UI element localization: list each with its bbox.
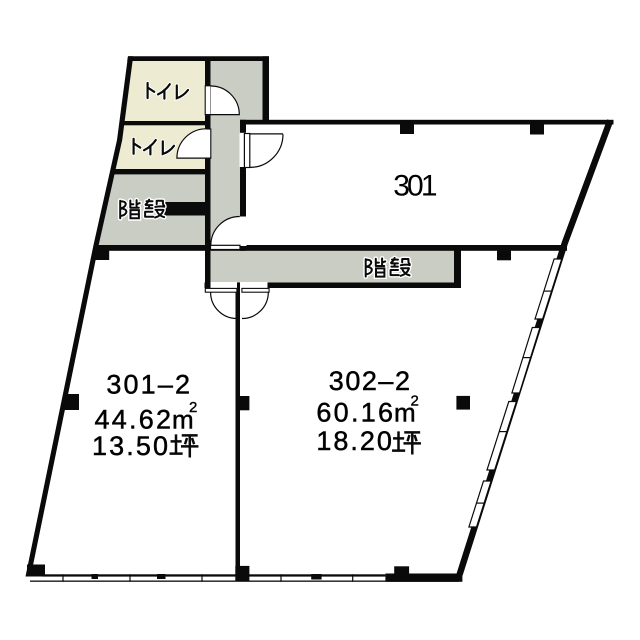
svg-text:302–2: 302–2: [329, 366, 410, 396]
svg-text:2: 2: [411, 393, 419, 410]
svg-text:301–2: 301–2: [106, 370, 190, 400]
svg-text:18.20: 18.20: [316, 426, 392, 456]
svg-text:2: 2: [189, 399, 197, 416]
svg-text:13.50: 13.50: [92, 431, 168, 461]
svg-text:301: 301: [393, 170, 437, 203]
svg-text:60.16: 60.16: [316, 397, 393, 427]
